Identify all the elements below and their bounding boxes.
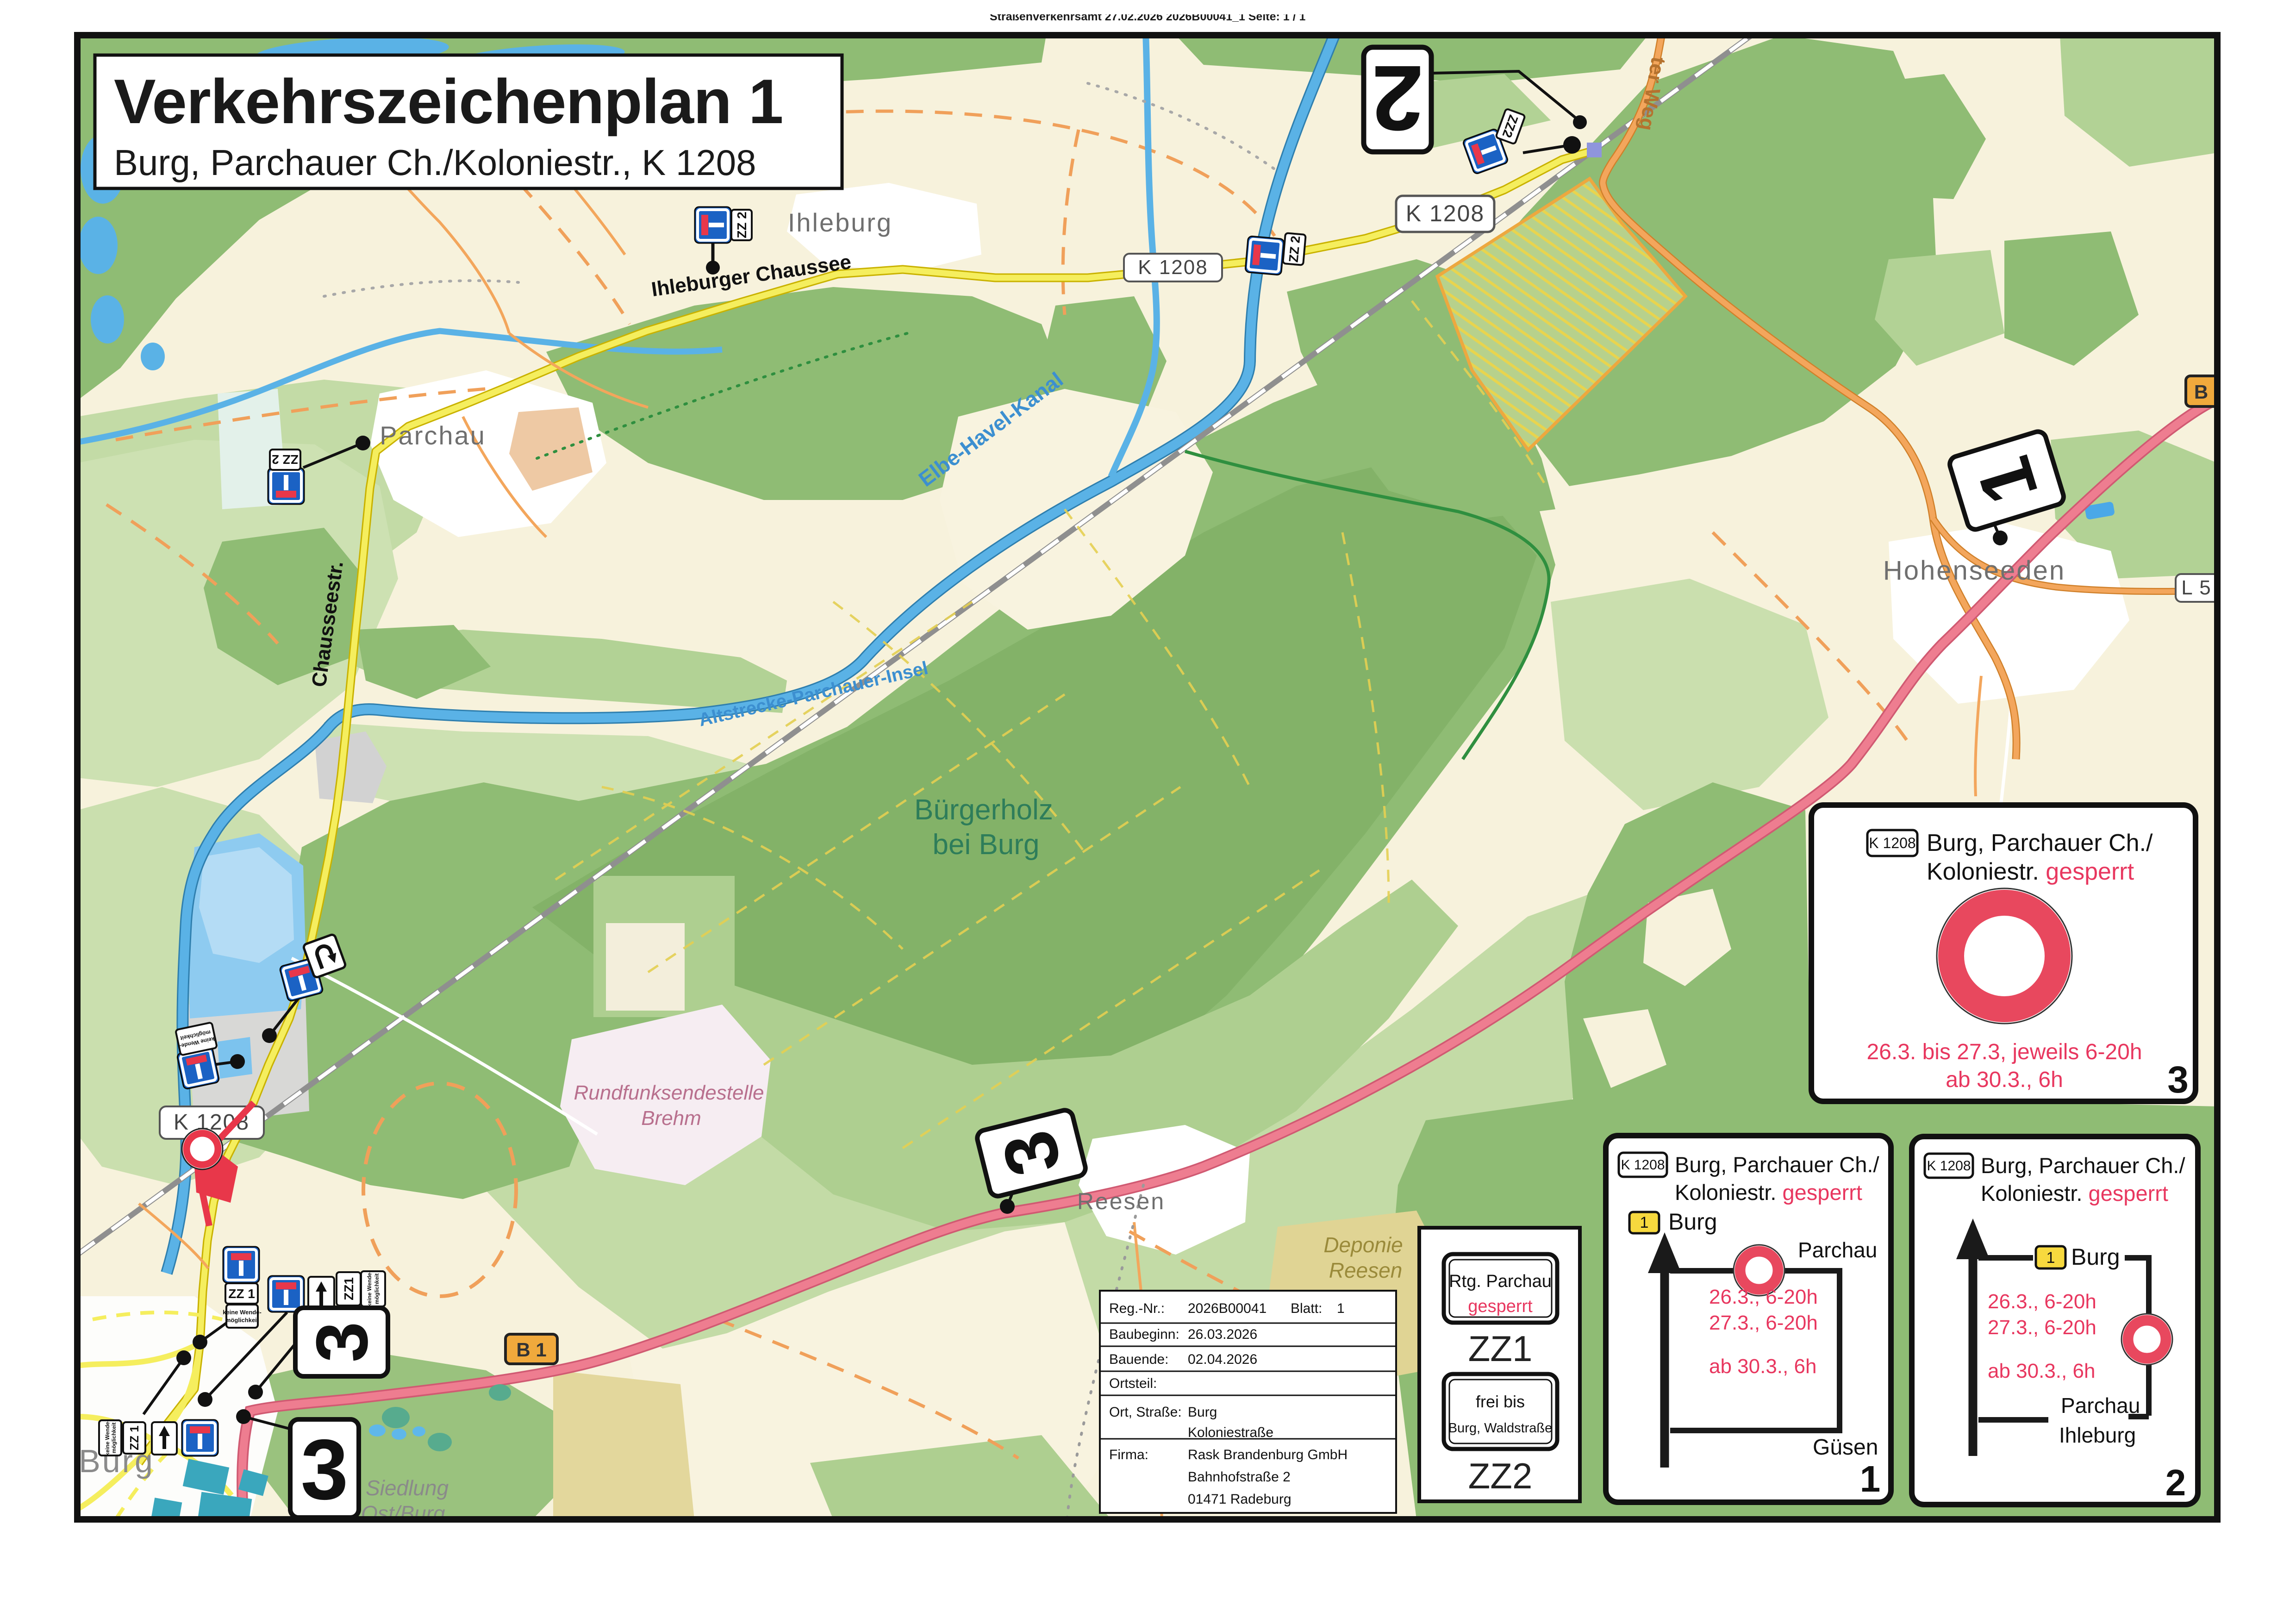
svg-text:K 1208: K 1208: [1621, 1157, 1665, 1173]
svg-text:ab 30.3., 6h: ab 30.3., 6h: [1709, 1355, 1816, 1378]
svg-text:Hohenseeden: Hohenseeden: [1883, 556, 2065, 586]
svg-text:Burg, Parchauer Ch./Koloniestr: Burg, Parchauer Ch./Koloniestr., K 1208: [114, 142, 756, 183]
svg-text:Koloniestr. gesperrt: Koloniestr. gesperrt: [1981, 1181, 2168, 1206]
svg-text:Verkehrszeichenplan 1: Verkehrszeichenplan 1: [114, 66, 783, 137]
svg-text:Burg, Parchauer Ch./: Burg, Parchauer Ch./: [1981, 1153, 2185, 1178]
svg-text:Baubeginn:: Baubeginn:: [1109, 1327, 1179, 1342]
svg-text:K 1208: K 1208: [1869, 835, 1915, 851]
svg-text:L 5: L 5: [2181, 576, 2212, 599]
svg-text:Rask Brandenburg GmbH: Rask Brandenburg GmbH: [1188, 1447, 1348, 1462]
svg-text:Burg: Burg: [1188, 1405, 1217, 1420]
svg-text:ZZ2: ZZ2: [1468, 1455, 1533, 1496]
svg-text:Ihleburg: Ihleburg: [2059, 1423, 2136, 1447]
svg-text:26.3., 6-20h: 26.3., 6-20h: [1988, 1290, 2096, 1313]
svg-text:Deponie: Deponie: [1323, 1233, 1403, 1257]
svg-text:Burg: Burg: [1668, 1209, 1717, 1235]
svg-text:Ort, Straße:: Ort, Straße:: [1109, 1405, 1182, 1420]
svg-text:ZZ 2: ZZ 2: [1286, 235, 1303, 263]
svg-text:3: 3: [301, 1422, 349, 1518]
svg-text:26.3., 6-20h: 26.3., 6-20h: [1709, 1286, 1818, 1308]
svg-text:2026B00041: 2026B00041: [1188, 1301, 1267, 1316]
svg-text:keine Wende-: keine Wende-: [366, 1271, 373, 1306]
svg-text:Parchau: Parchau: [2061, 1393, 2140, 1418]
svg-text:K 1208: K 1208: [1138, 256, 1208, 279]
svg-text:Burg, Parchauer Ch./: Burg, Parchauer Ch./: [1675, 1152, 1879, 1177]
svg-text:Blatt:: Blatt:: [1291, 1301, 1322, 1316]
svg-text:ZZ1: ZZ1: [342, 1277, 356, 1300]
svg-text:Parchau: Parchau: [1798, 1238, 1877, 1262]
svg-text:27.3., 6-20h: 27.3., 6-20h: [1988, 1316, 2096, 1339]
svg-text:Bahnhofstraße 2: Bahnhofstraße 2: [1188, 1469, 1291, 1485]
svg-text:B 1: B 1: [516, 1339, 546, 1361]
svg-text:26.3. bis 27.3, jeweils 6-20h: 26.3. bis 27.3, jeweils 6-20h: [1866, 1040, 2142, 1064]
svg-text:K 1208: K 1208: [1927, 1158, 1971, 1174]
svg-text:3: 3: [2167, 1059, 2189, 1101]
svg-text:Brehm: Brehm: [641, 1107, 701, 1130]
svg-text:ab 30.3., 6h: ab 30.3., 6h: [1988, 1360, 2095, 1382]
svg-text:Bürgerholz: Bürgerholz: [914, 794, 1053, 826]
svg-text:Burg: Burg: [2071, 1244, 2120, 1270]
svg-text:Güsen: Güsen: [1813, 1435, 1878, 1460]
svg-text:1: 1: [2046, 1249, 2055, 1267]
svg-text:B: B: [2194, 381, 2208, 403]
svg-text:bei Burg: bei Burg: [933, 829, 1040, 861]
svg-text:möglichkeit: möglichkeit: [374, 1274, 380, 1305]
svg-text:Siedlung: Siedlung: [366, 1476, 449, 1500]
svg-text:Reesen: Reesen: [1077, 1188, 1165, 1214]
svg-text:möglichkeit: möglichkeit: [225, 1317, 259, 1324]
svg-text:1: 1: [1640, 1214, 1649, 1231]
svg-text:möglichkeit: möglichkeit: [111, 1423, 117, 1454]
svg-text:ZZ 1: ZZ 1: [127, 1425, 141, 1450]
svg-text:K 1208: K 1208: [1406, 200, 1485, 226]
svg-text:ZZ 2: ZZ 2: [272, 452, 299, 467]
svg-text:Burg, Parchauer Ch./: Burg, Parchauer Ch./: [1927, 830, 2153, 856]
svg-text:ZZ 2: ZZ 2: [735, 212, 749, 238]
svg-text:2: 2: [2165, 1462, 2186, 1503]
svg-text:Burg, Waldstraße: Burg, Waldstraße: [1448, 1421, 1553, 1436]
svg-text:keine Wende-: keine Wende-: [223, 1309, 262, 1316]
svg-text:Koloniestr. gesperrt: Koloniestr. gesperrt: [1927, 858, 2134, 885]
svg-text:ZZ1: ZZ1: [1468, 1328, 1533, 1369]
svg-text:Parchau: Parchau: [380, 421, 486, 450]
svg-text:Reg.-Nr.:: Reg.-Nr.:: [1109, 1301, 1165, 1316]
svg-text:Bauende:: Bauende:: [1109, 1352, 1168, 1367]
svg-text:Ihleburg: Ihleburg: [788, 208, 892, 237]
svg-text:Reesen: Reesen: [1329, 1258, 1403, 1282]
svg-text:Rundfunksendestelle: Rundfunksendestelle: [574, 1081, 764, 1104]
svg-text:26.03.2026: 26.03.2026: [1188, 1327, 1257, 1342]
svg-text:Firma:: Firma:: [1109, 1447, 1148, 1462]
svg-text:1: 1: [1337, 1301, 1345, 1316]
svg-text:1: 1: [1860, 1458, 1881, 1499]
svg-text:Rtg. Parchau: Rtg. Parchau: [1449, 1272, 1552, 1291]
svg-text:Koloniestr. gesperrt: Koloniestr. gesperrt: [1675, 1180, 1862, 1205]
svg-text:keine Wende-: keine Wende-: [104, 1420, 111, 1455]
svg-text:01471 Radeburg: 01471 Radeburg: [1188, 1492, 1291, 1507]
svg-text:Ortsteil:: Ortsteil:: [1109, 1376, 1157, 1391]
svg-text:gesperrt: gesperrt: [1468, 1297, 1533, 1316]
svg-text:3: 3: [301, 1322, 383, 1362]
svg-text:27.3., 6-20h: 27.3., 6-20h: [1709, 1312, 1818, 1334]
svg-text:02.04.2026: 02.04.2026: [1188, 1352, 1257, 1367]
svg-text:Koloniestraße: Koloniestraße: [1188, 1425, 1273, 1440]
svg-text:ZZ 1: ZZ 1: [228, 1287, 255, 1301]
svg-text:2: 2: [1372, 46, 1423, 150]
svg-text:ab 30.3., 6h: ab 30.3., 6h: [1946, 1068, 2063, 1092]
svg-text:frei bis: frei bis: [1476, 1392, 1525, 1411]
